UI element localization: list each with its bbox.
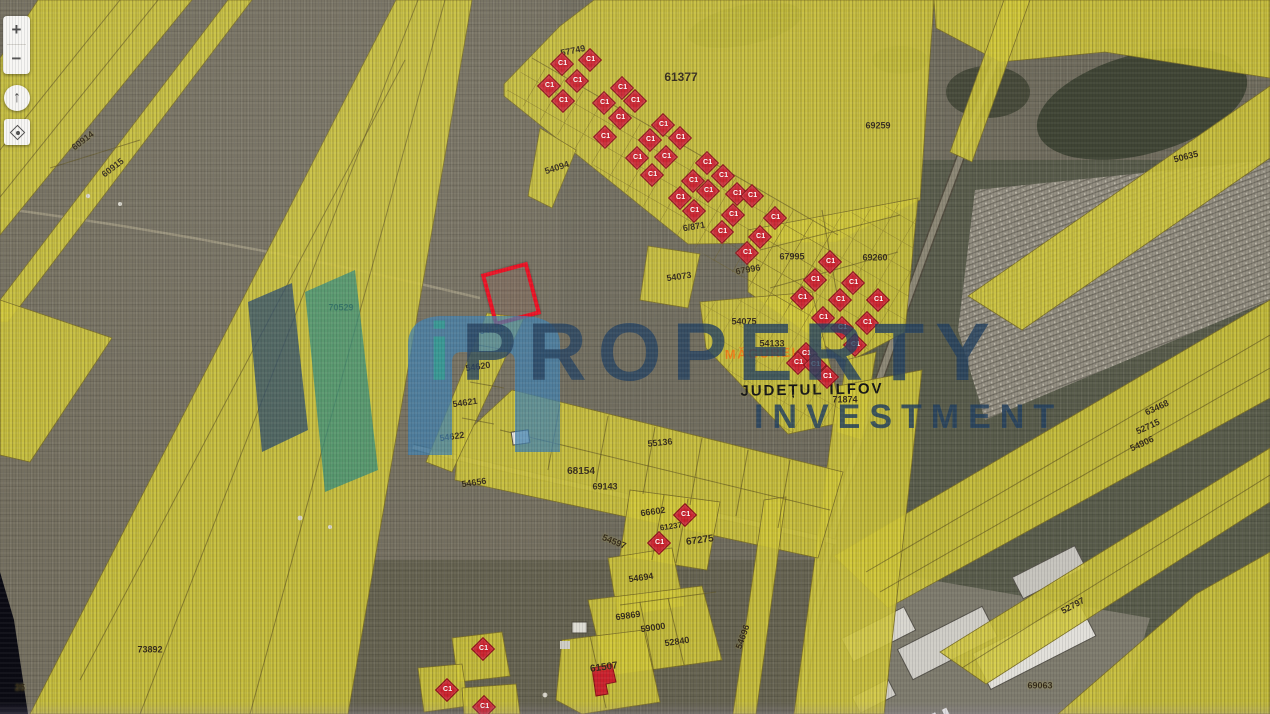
parcel-label: 50635 bbox=[1173, 150, 1199, 165]
parcel-labels-layer: 609146091557749613776925950635540946/871… bbox=[0, 0, 1270, 714]
parcel-label: 67275 bbox=[686, 534, 715, 548]
locate-button[interactable] bbox=[4, 119, 30, 145]
parcel-label: 55136 bbox=[647, 437, 673, 449]
building-marker-c1: C1 bbox=[472, 695, 496, 714]
parcel-label: 66602 bbox=[640, 506, 666, 518]
parcel-label: 54620 bbox=[465, 361, 491, 373]
parcel-label: 52797 bbox=[1060, 596, 1086, 616]
compass-button[interactable]: ↑ bbox=[4, 85, 30, 111]
parcel-label: 69260 bbox=[862, 254, 887, 263]
parcel-label: 54621 bbox=[452, 397, 478, 409]
parcel-label: 69143 bbox=[592, 483, 617, 492]
building-marker-c1: C1 bbox=[654, 145, 678, 169]
parcel-label: 68154 bbox=[567, 467, 595, 477]
building-marker-c1: C1 bbox=[668, 126, 692, 150]
building-marker-c1: C1 bbox=[803, 268, 827, 292]
building-marker-c1: C1 bbox=[625, 146, 649, 170]
parcel-label: 54075 bbox=[731, 318, 756, 327]
parcel-label: 69869 bbox=[615, 610, 641, 622]
parcel-label: 54906 bbox=[1129, 435, 1155, 454]
building-marker-c1: C1 bbox=[866, 288, 890, 312]
building-marker-c1: C1 bbox=[828, 288, 852, 312]
building-marker-c1: C1 bbox=[818, 250, 842, 274]
parcel-label: 61377 bbox=[664, 71, 697, 83]
building-marker-c1: C1 bbox=[471, 637, 495, 661]
parcel-label: 59000 bbox=[640, 622, 666, 634]
parcel-label: 61507 bbox=[590, 661, 619, 675]
parcel-label: 67996 bbox=[735, 263, 761, 276]
zoom-in-button[interactable]: + bbox=[3, 16, 30, 44]
parcel-label: 54656 bbox=[461, 477, 487, 489]
parcel-label: 69063 bbox=[1027, 682, 1052, 691]
parcel-label: 69259 bbox=[865, 122, 890, 131]
map-canvas[interactable]: 609146091557749613776925950635540946/871… bbox=[0, 0, 1270, 714]
parcel-label: 52840 bbox=[664, 636, 690, 648]
parcel-label: 60914 bbox=[70, 130, 95, 153]
building-marker-c1: C1 bbox=[647, 531, 671, 555]
selected-parcel-outline[interactable] bbox=[481, 262, 541, 327]
parcel-label: 67995 bbox=[779, 253, 804, 262]
building-marker-c1: C1 bbox=[565, 69, 589, 93]
zoom-control: + − bbox=[3, 16, 30, 74]
building-marker-c1: C1 bbox=[843, 333, 867, 357]
parcel-label: 63468 bbox=[1144, 399, 1170, 418]
parcel-label: 54597 bbox=[601, 533, 628, 551]
parcel-label: 54696 bbox=[734, 624, 751, 651]
place-label: JUDEȚUL ILFOV bbox=[740, 381, 883, 398]
parcel-label: 54622 bbox=[439, 431, 465, 443]
building-marker-c1: C1 bbox=[640, 163, 664, 187]
parcel-label: 61237 bbox=[659, 521, 682, 532]
parcel-label: 54694 bbox=[628, 572, 654, 584]
building-marker-c1: C1 bbox=[435, 678, 459, 702]
parcel-label: 70529 bbox=[328, 304, 353, 313]
zoom-out-button[interactable]: − bbox=[3, 45, 30, 73]
parcel-label: 60915 bbox=[100, 157, 125, 180]
compass-arrow-icon: ↑ bbox=[13, 89, 21, 106]
building-marker-c1: C1 bbox=[551, 89, 575, 113]
parcel-label: 25 bbox=[15, 684, 25, 693]
parcel-label: 54073 bbox=[666, 271, 692, 283]
building-marker-c1: C1 bbox=[841, 271, 865, 295]
building-marker-c1: C1 bbox=[763, 206, 787, 230]
building-marker-c1: C1 bbox=[608, 106, 632, 130]
parcel-label: 52715 bbox=[1135, 418, 1161, 437]
building-marker-c1: C1 bbox=[790, 286, 814, 310]
building-marker-c1: C1 bbox=[593, 125, 617, 149]
parcel-label: 54619 bbox=[479, 324, 505, 336]
parcel-label: 73892 bbox=[137, 646, 162, 655]
parcel-label: 54094 bbox=[544, 160, 571, 176]
building-marker-c1: C1 bbox=[855, 311, 879, 335]
locate-dot-icon bbox=[16, 131, 20, 135]
